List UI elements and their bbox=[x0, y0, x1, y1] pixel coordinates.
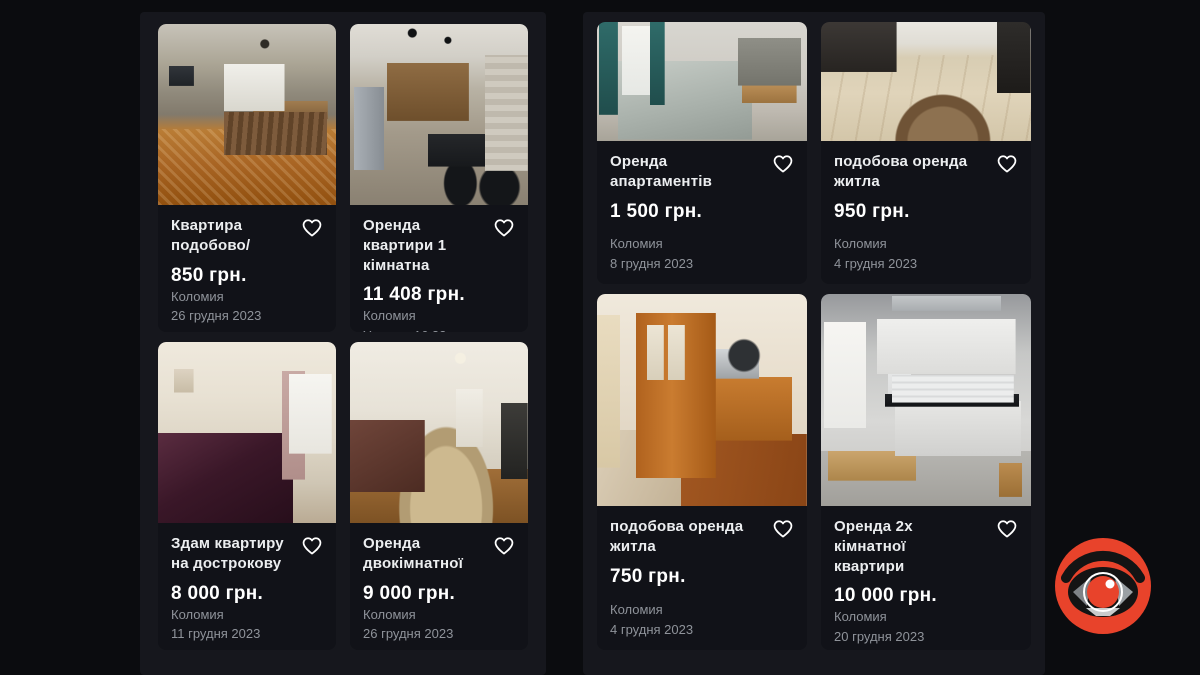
listing-date: 11 грудня 2023 bbox=[171, 624, 323, 644]
listing-location: Коломия bbox=[171, 287, 323, 307]
listing-body: Квартира подобово/ 850 грн. Коломия 26 г… bbox=[158, 205, 336, 332]
listing-body: Оренда двокімнатної 9 000 грн. Коломия 2… bbox=[350, 523, 528, 650]
listing-location: Коломия bbox=[363, 605, 515, 625]
favorite-heart-icon[interactable] bbox=[996, 153, 1018, 175]
listing-meta: Коломия 4 грудня 2023 bbox=[610, 600, 794, 639]
listing-title-row: подобова оренда житла bbox=[610, 517, 794, 557]
favorite-heart-icon[interactable] bbox=[301, 217, 323, 239]
listing-price: 1 500 грн. bbox=[610, 201, 794, 223]
listing-price: 11 408 грн. bbox=[363, 284, 515, 306]
listing-meta: Коломия 8 грудня 2023 bbox=[610, 234, 794, 273]
listing-location: Коломия bbox=[171, 605, 323, 625]
listing-meta: Коломия 11 грудня 2023 bbox=[171, 605, 323, 644]
listing-location: Коломия bbox=[363, 306, 515, 326]
listing-date: Учора в 16:32 bbox=[363, 326, 515, 332]
favorite-heart-icon[interactable] bbox=[772, 518, 794, 540]
listing-title[interactable]: Оренда двокімнатної bbox=[363, 534, 487, 574]
listing-card[interactable]: Квартира подобово/ 850 грн. Коломия 26 г… bbox=[158, 24, 336, 332]
listing-title[interactable]: Здам квартиру на дострокову bbox=[171, 534, 295, 574]
listing-date: 26 грудня 2023 bbox=[171, 306, 323, 326]
listing-photo[interactable] bbox=[597, 294, 807, 506]
listing-photo[interactable] bbox=[821, 22, 1031, 141]
favorite-heart-icon[interactable] bbox=[493, 217, 515, 239]
listing-card[interactable]: Оренда двокімнатної 9 000 грн. Коломия 2… bbox=[350, 342, 528, 650]
listing-title[interactable]: Оренда 2х кімнатної квартири bbox=[834, 517, 974, 576]
listing-photo[interactable] bbox=[158, 24, 336, 205]
listing-photo[interactable] bbox=[821, 294, 1031, 506]
listing-location: Коломия bbox=[610, 234, 794, 254]
listing-price: 750 грн. bbox=[610, 566, 794, 588]
listing-card[interactable]: Оренда 2х кімнатної квартири 10 000 грн.… bbox=[821, 294, 1031, 650]
listing-location: Коломия bbox=[610, 600, 794, 620]
listing-body: Оренда апартаментів 1 500 грн. Коломия 8… bbox=[597, 141, 807, 284]
listing-location: Коломия bbox=[834, 607, 1018, 627]
listing-photo[interactable] bbox=[350, 342, 528, 523]
favorite-heart-icon[interactable] bbox=[996, 518, 1018, 540]
listing-card[interactable]: Оренда квартири 1 кімнатна 11 408 грн. К… bbox=[350, 24, 528, 332]
listing-title-row: Квартира подобово/ bbox=[171, 216, 323, 256]
listing-photo[interactable] bbox=[158, 342, 336, 523]
listing-meta: Коломия 4 грудня 2023 bbox=[834, 234, 1018, 273]
listing-body: подобова оренда житла 950 грн. Коломия 4… bbox=[821, 141, 1031, 284]
listing-title-row: Оренда двокімнатної bbox=[363, 534, 515, 574]
listing-date: 4 грудня 2023 bbox=[610, 620, 794, 640]
listings-row: Оренда апартаментів 1 500 грн. Коломия 8… bbox=[597, 22, 1031, 284]
listing-title[interactable]: Квартира подобово/ bbox=[171, 216, 295, 256]
listing-title-row: Оренда 2х кімнатної квартири bbox=[834, 517, 1018, 576]
listing-price: 850 грн. bbox=[171, 265, 323, 287]
listing-date: 4 грудня 2023 bbox=[834, 254, 1018, 274]
listing-date: 8 грудня 2023 bbox=[610, 254, 794, 274]
listing-title-row: подобова оренда житла bbox=[834, 152, 1018, 192]
listing-card[interactable]: Здам квартиру на дострокову 8 000 грн. К… bbox=[158, 342, 336, 650]
eye-camera-logo bbox=[1053, 536, 1153, 636]
listings-panel-right: Оренда апартаментів 1 500 грн. Коломия 8… bbox=[583, 12, 1045, 675]
listing-price: 9 000 грн. bbox=[363, 583, 515, 605]
listing-card[interactable]: подобова оренда житла 950 грн. Коломия 4… bbox=[821, 22, 1031, 284]
favorite-heart-icon[interactable] bbox=[772, 153, 794, 175]
listing-card[interactable]: Оренда апартаментів 1 500 грн. Коломия 8… bbox=[597, 22, 807, 284]
favorite-heart-icon[interactable] bbox=[301, 535, 323, 557]
listing-title-row: Здам квартиру на дострокову bbox=[171, 534, 323, 574]
listing-price: 950 грн. bbox=[834, 201, 1018, 223]
listing-title[interactable]: Оренда апартаментів bbox=[610, 152, 750, 192]
listing-title[interactable]: Оренда квартири 1 кімнатна bbox=[363, 216, 487, 275]
listing-body: подобова оренда житла 750 грн. Коломия 4… bbox=[597, 506, 807, 650]
listings-row: Квартира подобово/ 850 грн. Коломия 26 г… bbox=[158, 24, 528, 332]
listing-photo[interactable] bbox=[350, 24, 528, 205]
listings-row: подобова оренда житла 750 грн. Коломия 4… bbox=[597, 294, 1031, 650]
listing-body: Оренда квартири 1 кімнатна 11 408 грн. К… bbox=[350, 205, 528, 332]
listing-title[interactable]: подобова оренда житла bbox=[610, 517, 750, 557]
listing-title-row: Оренда апартаментів bbox=[610, 152, 794, 192]
listing-meta: Коломия 26 грудня 2023 bbox=[171, 287, 323, 326]
listing-title[interactable]: подобова оренда житла bbox=[834, 152, 974, 192]
favorite-heart-icon[interactable] bbox=[493, 535, 515, 557]
listing-date: 20 грудня 2023 bbox=[834, 627, 1018, 647]
listings-panel-left: Квартира подобово/ 850 грн. Коломия 26 г… bbox=[140, 12, 546, 675]
listing-meta: Коломия Учора в 16:32 bbox=[363, 306, 515, 332]
listing-price: 10 000 грн. bbox=[834, 585, 1018, 607]
listing-body: Оренда 2х кімнатної квартири 10 000 грн.… bbox=[821, 506, 1031, 650]
listing-price: 8 000 грн. bbox=[171, 583, 323, 605]
listing-date: 26 грудня 2023 bbox=[363, 624, 515, 644]
listing-title-row: Оренда квартири 1 кімнатна bbox=[363, 216, 515, 275]
listing-meta: Коломия 26 грудня 2023 bbox=[363, 605, 515, 644]
listing-meta: Коломия 20 грудня 2023 bbox=[834, 607, 1018, 646]
listing-body: Здам квартиру на дострокову 8 000 грн. К… bbox=[158, 523, 336, 650]
listing-card[interactable]: подобова оренда житла 750 грн. Коломия 4… bbox=[597, 294, 807, 650]
listing-photo[interactable] bbox=[597, 22, 807, 141]
listings-row: Здам квартиру на дострокову 8 000 грн. К… bbox=[158, 342, 528, 650]
listing-location: Коломия bbox=[834, 234, 1018, 254]
